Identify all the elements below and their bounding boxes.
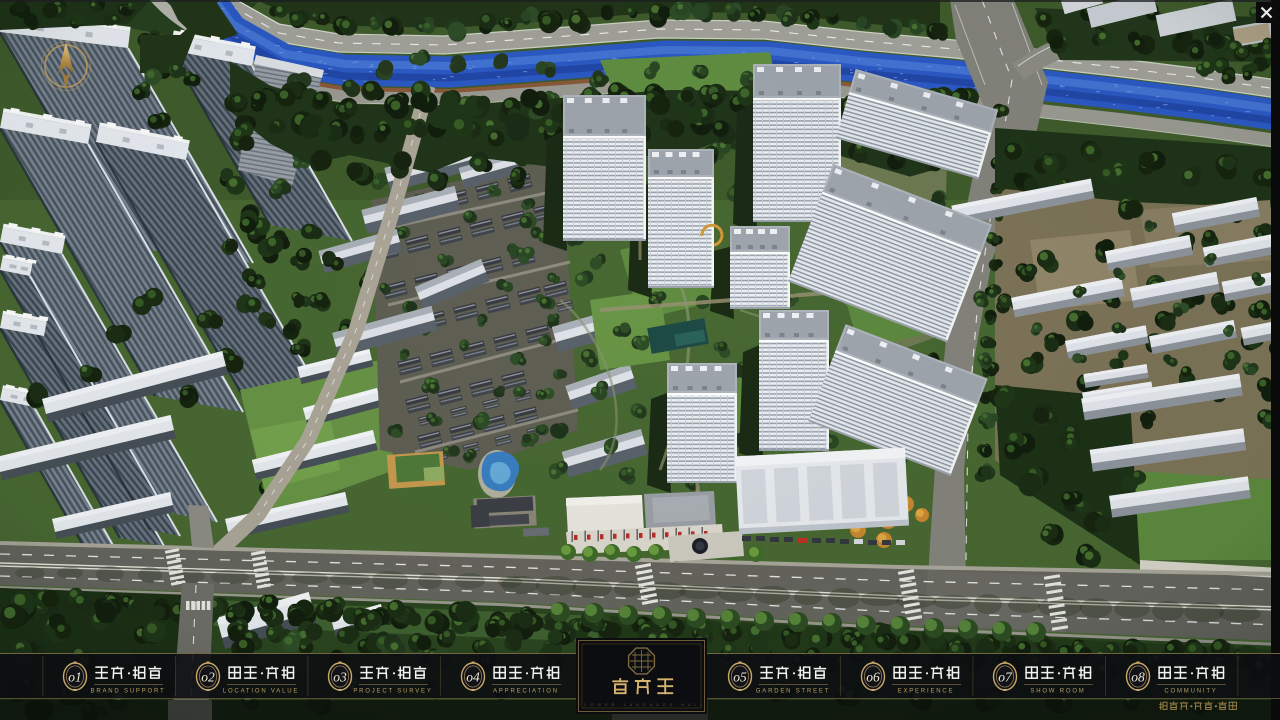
svg-text:F L O W E R · L A N G U A G E: F L O W E R · L A N G U A G E · H A L L: [578, 702, 704, 707]
svg-text:o6: o6: [866, 670, 880, 685]
svg-text:COMMUNITY: COMMUNITY: [1164, 689, 1217, 695]
svg-text:LOCATION VALUE: LOCATION VALUE: [223, 689, 299, 695]
svg-text:PROJECT SURVEY: PROJECT SURVEY: [353, 689, 432, 695]
svg-text:o5: o5: [733, 670, 747, 685]
svg-text:o8: o8: [1131, 670, 1145, 685]
svg-text:o3: o3: [333, 670, 347, 685]
svg-text:GARDEN STREET: GARDEN STREET: [756, 689, 830, 695]
svg-text:SHOW ROOM: SHOW ROOM: [1030, 689, 1085, 695]
svg-text:o7: o7: [998, 670, 1013, 685]
svg-text:o2: o2: [201, 670, 215, 685]
svg-text:APPRECIATION: APPRECIATION: [493, 689, 559, 695]
svg-text:o1: o1: [68, 670, 82, 685]
svg-text:EXPERIENCE: EXPERIENCE: [898, 689, 955, 695]
svg-text:o4: o4: [466, 670, 480, 685]
svg-text:BRAND SUPPORT: BRAND SUPPORT: [91, 689, 166, 695]
